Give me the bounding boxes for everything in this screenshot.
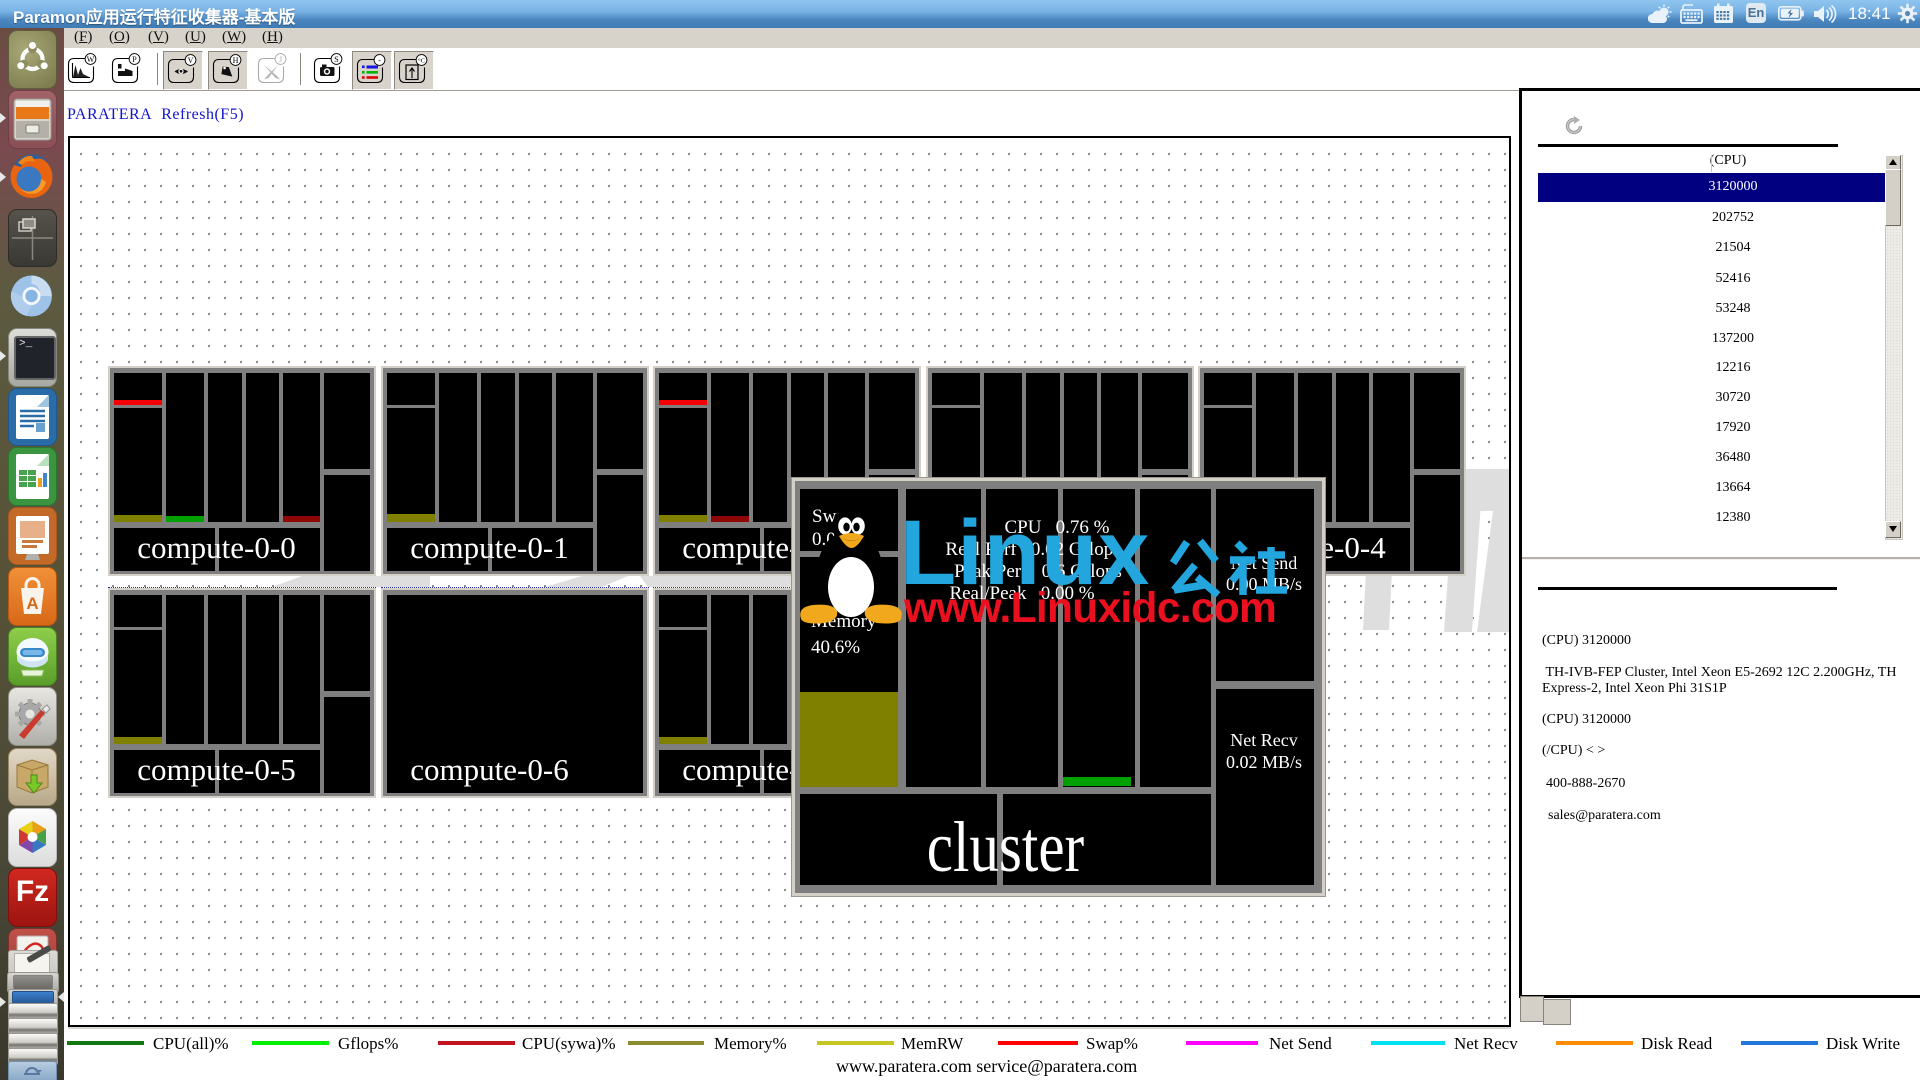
- svg-text:P: P: [132, 55, 137, 64]
- svg-text:S: S: [334, 55, 338, 64]
- svg-text:V: V: [188, 56, 194, 65]
- svg-text:A: A: [26, 594, 38, 613]
- svg-text:W: W: [87, 55, 95, 64]
- svg-text:-: -: [378, 56, 381, 65]
- svg-text:J: J: [279, 55, 282, 64]
- svg-text:°C: °C: [418, 58, 425, 65]
- svg-text:H: H: [233, 56, 239, 65]
